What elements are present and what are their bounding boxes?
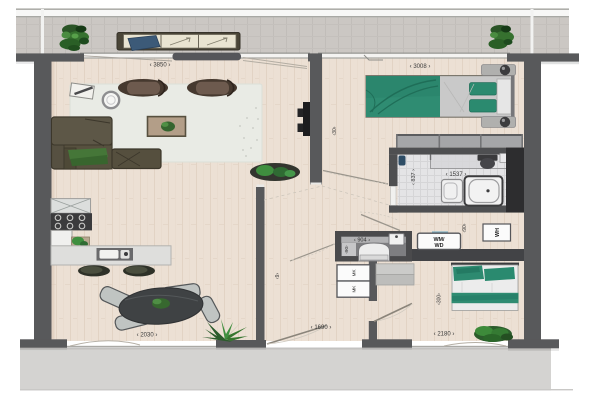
svg-text:‹ 837 ›: ‹ 837 ›: [411, 169, 417, 185]
svg-text:‹ 904 ›: ‹ 904 ›: [354, 238, 370, 244]
svg-text:‹30›: ‹30›: [332, 126, 338, 135]
svg-text:WD: WD: [435, 243, 444, 249]
svg-text:‹ 3850 ›: ‹ 3850 ›: [150, 63, 171, 69]
svg-text:‹90›: ‹90›: [344, 245, 349, 254]
svg-text:‹ 1690 ›: ‹ 1690 ›: [311, 325, 332, 331]
svg-text:MK: MK: [352, 269, 357, 277]
svg-text:‹300›: ‹300›: [437, 293, 443, 305]
svg-text:WH: WH: [495, 228, 501, 237]
svg-text:‹ 1537 ›: ‹ 1537 ›: [446, 172, 467, 178]
svg-text:MK: MK: [352, 285, 357, 293]
svg-text:‹ 2030 ›: ‹ 2030 ›: [137, 333, 158, 339]
svg-text:‹9›: ‹9›: [275, 273, 281, 279]
svg-text:‹90›: ‹90›: [462, 223, 468, 232]
svg-text:‹ 2180 ›: ‹ 2180 ›: [434, 332, 455, 338]
svg-text:‹ 3008 ›: ‹ 3008 ›: [410, 64, 431, 70]
